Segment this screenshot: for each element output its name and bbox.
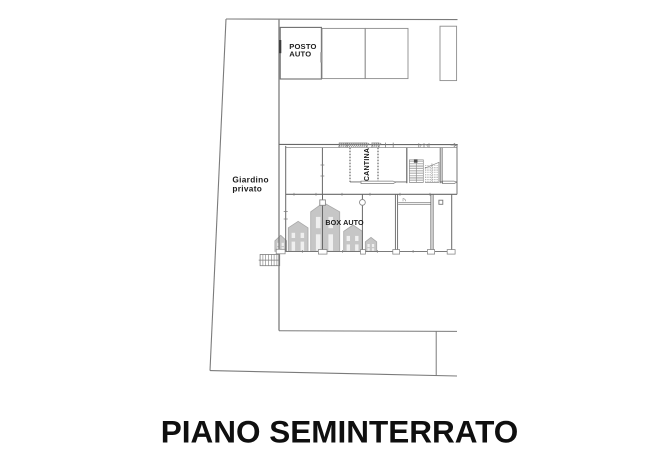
svg-text:AUTO: AUTO [289, 49, 311, 58]
svg-text:CANTINA: CANTINA [363, 148, 371, 181]
svg-text:PIANO SEMINTERRATO: PIANO SEMINTERRATO [161, 414, 519, 450]
svg-text:BOX AUTO: BOX AUTO [325, 218, 364, 227]
svg-text:privato: privato [232, 184, 262, 194]
